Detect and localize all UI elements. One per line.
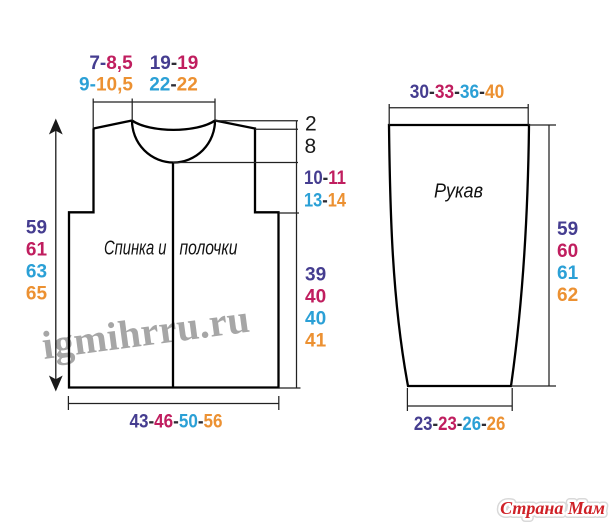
svg-text:59: 59 [557, 219, 578, 240]
svg-text:61: 61 [26, 240, 48, 261]
svg-text:19-19: 19-19 [150, 53, 199, 74]
svg-text:22-22: 22-22 [149, 75, 198, 96]
svg-text:40: 40 [305, 309, 326, 330]
svg-text:10-11: 10-11 [304, 168, 346, 189]
svg-text:13-14: 13-14 [304, 191, 346, 212]
svg-text:61: 61 [557, 263, 579, 284]
svg-text:65: 65 [26, 284, 48, 305]
svg-text:41: 41 [305, 331, 327, 352]
svg-text:39: 39 [305, 265, 326, 286]
svg-text:Спинка и: Спинка и [104, 238, 167, 260]
svg-text:9-10,5: 9-10,5 [79, 75, 133, 96]
svg-text:Рукав: Рукав [434, 181, 483, 203]
svg-text:2: 2 [305, 113, 317, 136]
svg-text:62: 62 [557, 285, 578, 306]
svg-text:60: 60 [557, 241, 578, 262]
svg-text:23-23-26-26: 23-23-26-26 [414, 414, 506, 435]
svg-text:8: 8 [305, 135, 317, 158]
svg-text:59: 59 [26, 218, 47, 239]
svg-text:полочки: полочки [180, 238, 238, 260]
svg-text:Страна Мам: Страна Мам [500, 498, 605, 518]
svg-text:63: 63 [26, 262, 47, 283]
svg-text:43-46-50-56: 43-46-50-56 [130, 412, 223, 433]
svg-text:40: 40 [305, 287, 326, 308]
svg-text:30-33-36-40: 30-33-36-40 [410, 82, 505, 103]
svg-text:7-8,5: 7-8,5 [89, 53, 133, 74]
